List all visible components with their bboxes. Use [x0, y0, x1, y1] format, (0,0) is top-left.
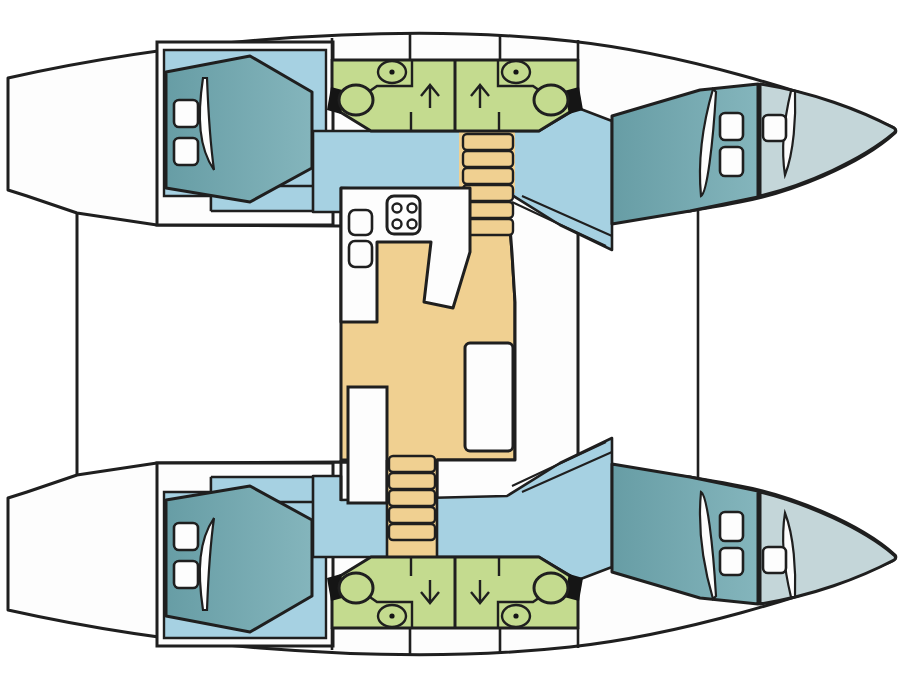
toilet — [534, 85, 583, 115]
burner — [393, 204, 402, 213]
deck-hatch — [174, 523, 198, 550]
starboard-companionway — [387, 456, 437, 558]
sink — [378, 605, 406, 627]
stair-step — [389, 507, 435, 523]
burner — [408, 220, 417, 229]
deck-hatch — [720, 113, 743, 140]
stair-step — [389, 456, 435, 472]
toilet-bowl — [339, 573, 373, 603]
deck-hatch — [174, 138, 198, 165]
sink — [502, 605, 530, 627]
toilet-bowl — [534, 573, 568, 603]
starboard-forward-cabin — [612, 464, 896, 604]
starboard-aft-cabin — [157, 463, 333, 646]
sink-drain — [513, 613, 518, 618]
saloon-cabinet — [348, 387, 387, 503]
stair-step — [389, 524, 435, 540]
deck-hatch — [720, 548, 743, 575]
deck-hatch — [174, 100, 198, 127]
floor-plan-canvas — [0, 0, 906, 688]
deck-hatch — [720, 512, 743, 541]
stair-step — [389, 473, 435, 489]
deck-hatch — [763, 547, 786, 573]
deck-hatch — [763, 115, 786, 141]
catamaran-floor-plan — [0, 0, 906, 688]
stove — [387, 196, 420, 234]
galley-sink — [349, 241, 372, 267]
port-aft-cabin — [157, 42, 333, 225]
stair-step — [463, 168, 513, 184]
burner — [408, 204, 417, 213]
sink-drain — [513, 69, 518, 74]
sink — [502, 61, 530, 83]
toilet — [534, 573, 583, 603]
galley-sink — [349, 210, 372, 235]
toilet-bowl — [534, 85, 568, 115]
double-berth — [166, 56, 312, 202]
port-forward-cabin — [612, 84, 896, 224]
stair-step — [463, 151, 513, 167]
stair-step — [389, 490, 435, 506]
saloon-table — [465, 343, 513, 451]
toilet-bowl — [339, 85, 373, 115]
sink-drain — [389, 613, 394, 618]
sink — [378, 61, 406, 83]
double-berth — [166, 486, 312, 632]
toilet — [327, 573, 373, 603]
burner — [393, 220, 402, 229]
sink-drain — [389, 69, 394, 74]
toilet — [327, 85, 373, 115]
stair-step — [463, 134, 513, 150]
deck-hatch — [174, 561, 198, 588]
deck-hatch — [720, 147, 743, 176]
